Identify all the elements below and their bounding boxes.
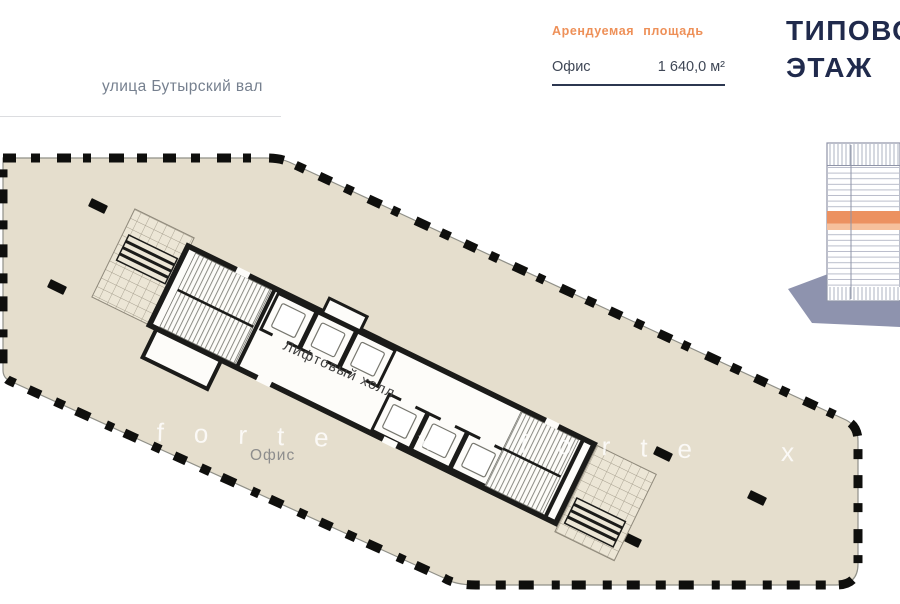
sheet-title: ТИПОВОЙ ЭТАЖ [786, 12, 900, 86]
legend-item-value: 1 640,0 м² [658, 59, 725, 75]
sheet-title-line2: ЭТАЖ [786, 49, 900, 86]
area-legend: Арендуемая площадь Офис 1 640,0 м² [552, 24, 725, 86]
building-illustration [788, 143, 900, 327]
legend-row: Офис 1 640,0 м² [552, 59, 725, 75]
building-crown [828, 144, 899, 165]
office-area-label: Офис [250, 447, 295, 465]
legend-item-label: Офис [552, 59, 591, 75]
legend-rule [552, 84, 725, 86]
floor-plan-page: x forte x forte x forte улица Бутырский … [0, 0, 900, 604]
street-name-label: улица Бутырский вал [102, 78, 263, 96]
legend-title: Арендуемая площадь [552, 24, 725, 38]
sheet-title-line1: ТИПОВОЙ [786, 12, 900, 49]
street-divider-line [0, 116, 281, 117]
building-base-colonnade [829, 287, 900, 300]
building-accent-band [827, 211, 900, 224]
building-accent-band-light [827, 224, 900, 231]
